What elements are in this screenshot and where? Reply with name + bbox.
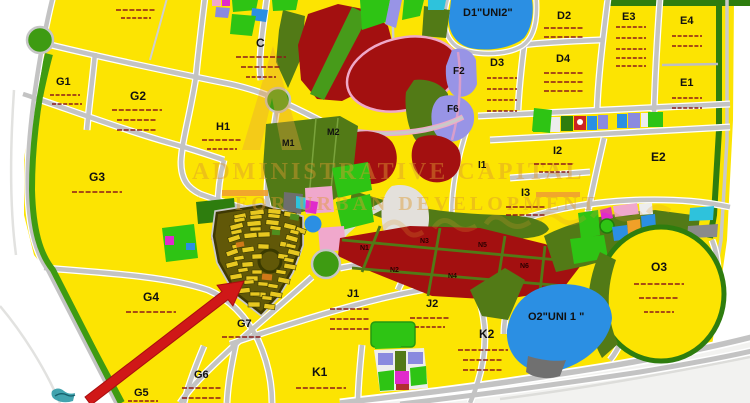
svg-text:ADMINISTRATIVE CAPITAL: ADMINISTRATIVE CAPITAL — [192, 159, 584, 185]
svg-text:E1: E1 — [680, 77, 693, 89]
svg-text:N4: N4 — [448, 273, 457, 280]
svg-text:C: C — [256, 36, 265, 50]
svg-text:F2: F2 — [453, 66, 465, 77]
svg-text:G3: G3 — [89, 170, 105, 184]
svg-text:K1: K1 — [312, 365, 328, 379]
svg-text:D1"UNI2": D1"UNI2" — [463, 7, 513, 19]
svg-text:K2: K2 — [479, 327, 495, 341]
svg-text:N6: N6 — [520, 263, 529, 270]
svg-text:I3: I3 — [521, 187, 530, 199]
svg-text:F6: F6 — [447, 104, 459, 115]
svg-text:E2: E2 — [651, 150, 666, 164]
svg-text:D3: D3 — [490, 57, 504, 69]
svg-text:N2: N2 — [390, 267, 399, 274]
svg-text:G2: G2 — [130, 89, 146, 103]
svg-text:H1: H1 — [216, 121, 230, 133]
svg-text:N3: N3 — [420, 238, 429, 245]
svg-text:I1: I1 — [478, 160, 487, 171]
svg-text:O2"UNI 1 ": O2"UNI 1 " — [528, 311, 584, 323]
svg-text:N5: N5 — [478, 242, 487, 249]
svg-text:D4: D4 — [556, 53, 571, 65]
svg-text:J1: J1 — [347, 288, 359, 300]
svg-text:G1: G1 — [56, 76, 71, 88]
svg-text:E3: E3 — [622, 11, 635, 23]
svg-text:D2: D2 — [557, 10, 571, 22]
svg-text:G6: G6 — [194, 369, 209, 381]
svg-text:G7: G7 — [237, 318, 252, 330]
svg-text:O3: O3 — [651, 260, 667, 274]
svg-text:E4: E4 — [680, 15, 694, 27]
svg-text:G5: G5 — [134, 387, 149, 399]
svg-text:M1: M1 — [282, 138, 295, 148]
svg-text:M2: M2 — [327, 127, 340, 137]
svg-text:I2: I2 — [553, 145, 562, 157]
svg-text:G4: G4 — [143, 290, 159, 304]
svg-text:N1: N1 — [360, 245, 369, 252]
svg-text:J2: J2 — [426, 298, 438, 310]
